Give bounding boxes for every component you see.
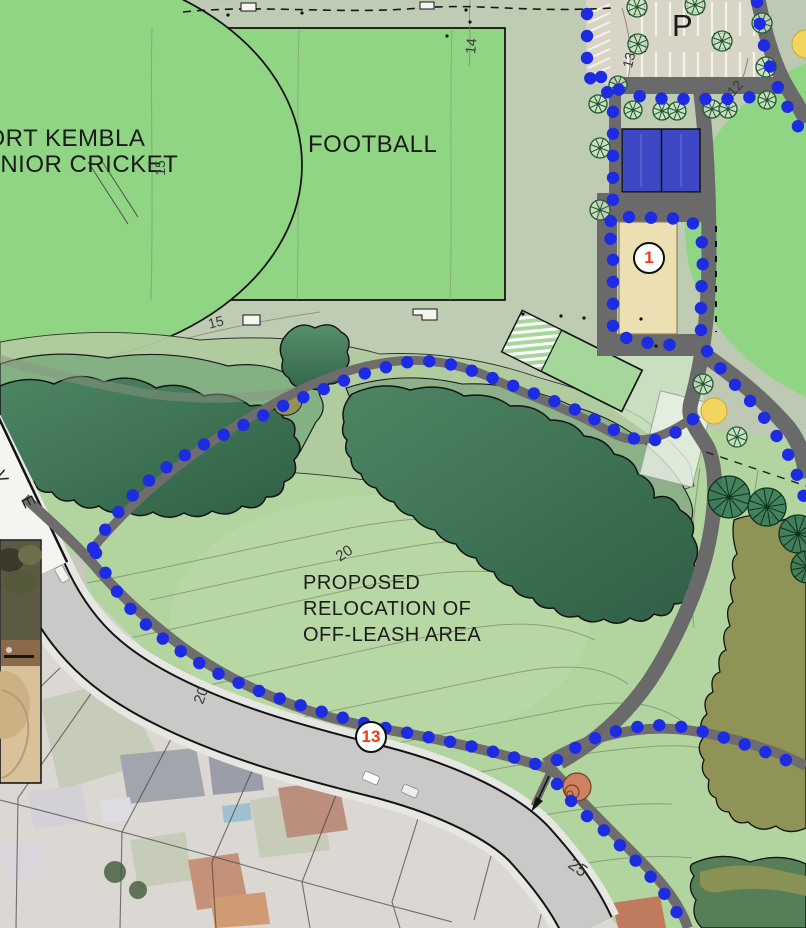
route-dot xyxy=(607,320,619,332)
route-dot xyxy=(257,409,269,421)
route-dot xyxy=(277,400,289,412)
table-symbol xyxy=(241,3,256,11)
corner-vegetation xyxy=(690,856,806,928)
route-dot xyxy=(569,742,581,754)
route-dot xyxy=(649,434,661,446)
route-dot xyxy=(551,778,563,790)
table-symbol xyxy=(243,315,260,325)
route-dot xyxy=(607,254,619,266)
route-dot xyxy=(175,645,187,657)
route-dot xyxy=(294,699,306,711)
route-dot xyxy=(792,120,804,132)
route-dot xyxy=(770,430,782,442)
route-dot xyxy=(358,717,370,729)
route-dot xyxy=(764,60,776,72)
route-dot xyxy=(701,345,713,357)
route-dot xyxy=(193,657,205,669)
route-dot xyxy=(588,413,600,425)
route-dot xyxy=(274,692,286,704)
route-dot xyxy=(675,721,687,733)
tree-icon xyxy=(727,427,747,447)
route-dot xyxy=(607,276,619,288)
route-dot xyxy=(581,52,593,64)
route-dot xyxy=(401,727,413,739)
route-dot xyxy=(699,93,711,105)
route-dot xyxy=(714,362,726,374)
route-dot xyxy=(198,438,210,450)
route-dot xyxy=(401,356,413,368)
masterplan-map: PORT KEMBLA JUNIOR CRICKET FOOTBALL P PR… xyxy=(0,0,806,928)
route-dot xyxy=(772,81,784,93)
tree-icon xyxy=(693,374,713,394)
route-dot xyxy=(508,751,520,763)
route-dot xyxy=(758,412,770,424)
tree-icon xyxy=(104,861,126,883)
route-dot xyxy=(687,413,699,425)
route-dot xyxy=(315,706,327,718)
route-dot xyxy=(695,302,707,314)
tree-icon xyxy=(758,91,776,109)
tree-icon xyxy=(624,101,642,119)
route-dot xyxy=(782,449,794,461)
route-dot xyxy=(607,106,619,118)
route-dot xyxy=(743,91,755,103)
tree-icon xyxy=(685,0,705,15)
route-dot xyxy=(112,506,124,518)
route-dot xyxy=(608,424,620,436)
route-dot xyxy=(584,72,596,84)
route-dot xyxy=(781,101,793,113)
map-canvas xyxy=(0,0,806,928)
route-dot xyxy=(729,379,741,391)
route-dot xyxy=(697,725,709,737)
route-dot xyxy=(604,233,616,245)
route-dot xyxy=(528,387,540,399)
route-dot xyxy=(379,722,391,734)
route-dot xyxy=(641,337,653,349)
route-dot xyxy=(143,474,155,486)
route-dot xyxy=(212,668,224,680)
route-dot xyxy=(601,86,613,98)
route-dot xyxy=(620,332,632,344)
route-dot xyxy=(380,361,392,373)
route-dot xyxy=(548,395,560,407)
route-dot xyxy=(695,280,707,292)
route-dot xyxy=(565,795,577,807)
route-dot xyxy=(744,395,756,407)
route-dot xyxy=(754,18,766,30)
route-dot xyxy=(718,731,730,743)
route-dot xyxy=(605,215,617,227)
route-dot xyxy=(598,824,610,836)
route-dot xyxy=(613,83,625,95)
photo-person xyxy=(6,647,12,653)
route-dot xyxy=(445,358,457,370)
route-dot xyxy=(359,367,371,379)
table-symbol xyxy=(420,2,434,9)
route-dot xyxy=(529,758,541,770)
route-dot xyxy=(237,419,249,431)
palm-tree-icon xyxy=(748,488,786,526)
route-dot xyxy=(644,871,656,883)
route-dot xyxy=(551,754,563,766)
route-dot xyxy=(581,8,593,20)
route-dot xyxy=(90,547,102,559)
route-dot xyxy=(758,39,770,51)
tree-icon xyxy=(627,0,647,17)
route-dot xyxy=(99,567,111,579)
route-dot xyxy=(721,93,733,105)
route-dot xyxy=(669,426,681,438)
route-dot xyxy=(658,888,670,900)
route-dot xyxy=(338,374,350,386)
route-dot xyxy=(160,461,172,473)
route-dot xyxy=(507,380,519,392)
route-dot xyxy=(607,194,619,206)
tree-icon xyxy=(712,31,732,51)
route-dot xyxy=(607,298,619,310)
route-dot xyxy=(645,212,657,224)
route-dot xyxy=(629,854,641,866)
route-dot xyxy=(297,391,309,403)
route-dot xyxy=(99,524,111,536)
route-dot xyxy=(337,712,349,724)
route-dot xyxy=(486,372,498,384)
route-dot xyxy=(318,383,330,395)
yellow-feature-icon xyxy=(701,398,727,424)
route-dot xyxy=(218,429,230,441)
route-dot xyxy=(422,731,434,743)
route-dot xyxy=(759,746,771,758)
photo-inset xyxy=(0,540,42,783)
route-dot xyxy=(677,93,689,105)
route-dot xyxy=(127,489,139,501)
route-dot xyxy=(179,449,191,461)
route-dot xyxy=(687,217,699,229)
route-dot xyxy=(423,355,435,367)
route-dot xyxy=(791,469,803,481)
route-dot xyxy=(253,685,265,697)
route-dot xyxy=(595,71,607,83)
route-dot xyxy=(655,92,667,104)
route-dot xyxy=(444,736,456,748)
route-dot xyxy=(634,90,646,102)
route-dot xyxy=(569,403,581,415)
route-dot xyxy=(465,740,477,752)
route-dot xyxy=(607,128,619,140)
route-dot xyxy=(581,30,593,42)
route-dot xyxy=(739,738,751,750)
route-dot xyxy=(667,212,679,224)
route-dot xyxy=(140,618,152,630)
courts xyxy=(622,129,700,192)
route-dot xyxy=(124,603,136,615)
route-dot xyxy=(466,365,478,377)
tree-icon xyxy=(129,881,147,899)
route-dot xyxy=(607,150,619,162)
route-dot xyxy=(487,746,499,758)
route-dot xyxy=(610,725,622,737)
route-dot xyxy=(780,754,792,766)
route-dot xyxy=(623,211,635,223)
route-dot xyxy=(614,839,626,851)
route-dot xyxy=(111,585,123,597)
route-dot xyxy=(695,324,707,336)
route-dot xyxy=(697,258,709,270)
route-dot xyxy=(232,677,244,689)
route-dot xyxy=(663,339,675,351)
tree-icon xyxy=(628,34,648,54)
route-dot xyxy=(157,632,169,644)
tree-icon xyxy=(589,95,607,113)
palm-tree-icon xyxy=(708,476,750,518)
route-dot xyxy=(628,432,640,444)
route-dot xyxy=(581,810,593,822)
route-dot xyxy=(670,906,682,918)
route-dot xyxy=(589,732,601,744)
route-dot xyxy=(653,719,665,731)
route-dot xyxy=(696,236,708,248)
route-dot xyxy=(607,172,619,184)
route-dot xyxy=(631,721,643,733)
amenities-building xyxy=(619,222,677,334)
